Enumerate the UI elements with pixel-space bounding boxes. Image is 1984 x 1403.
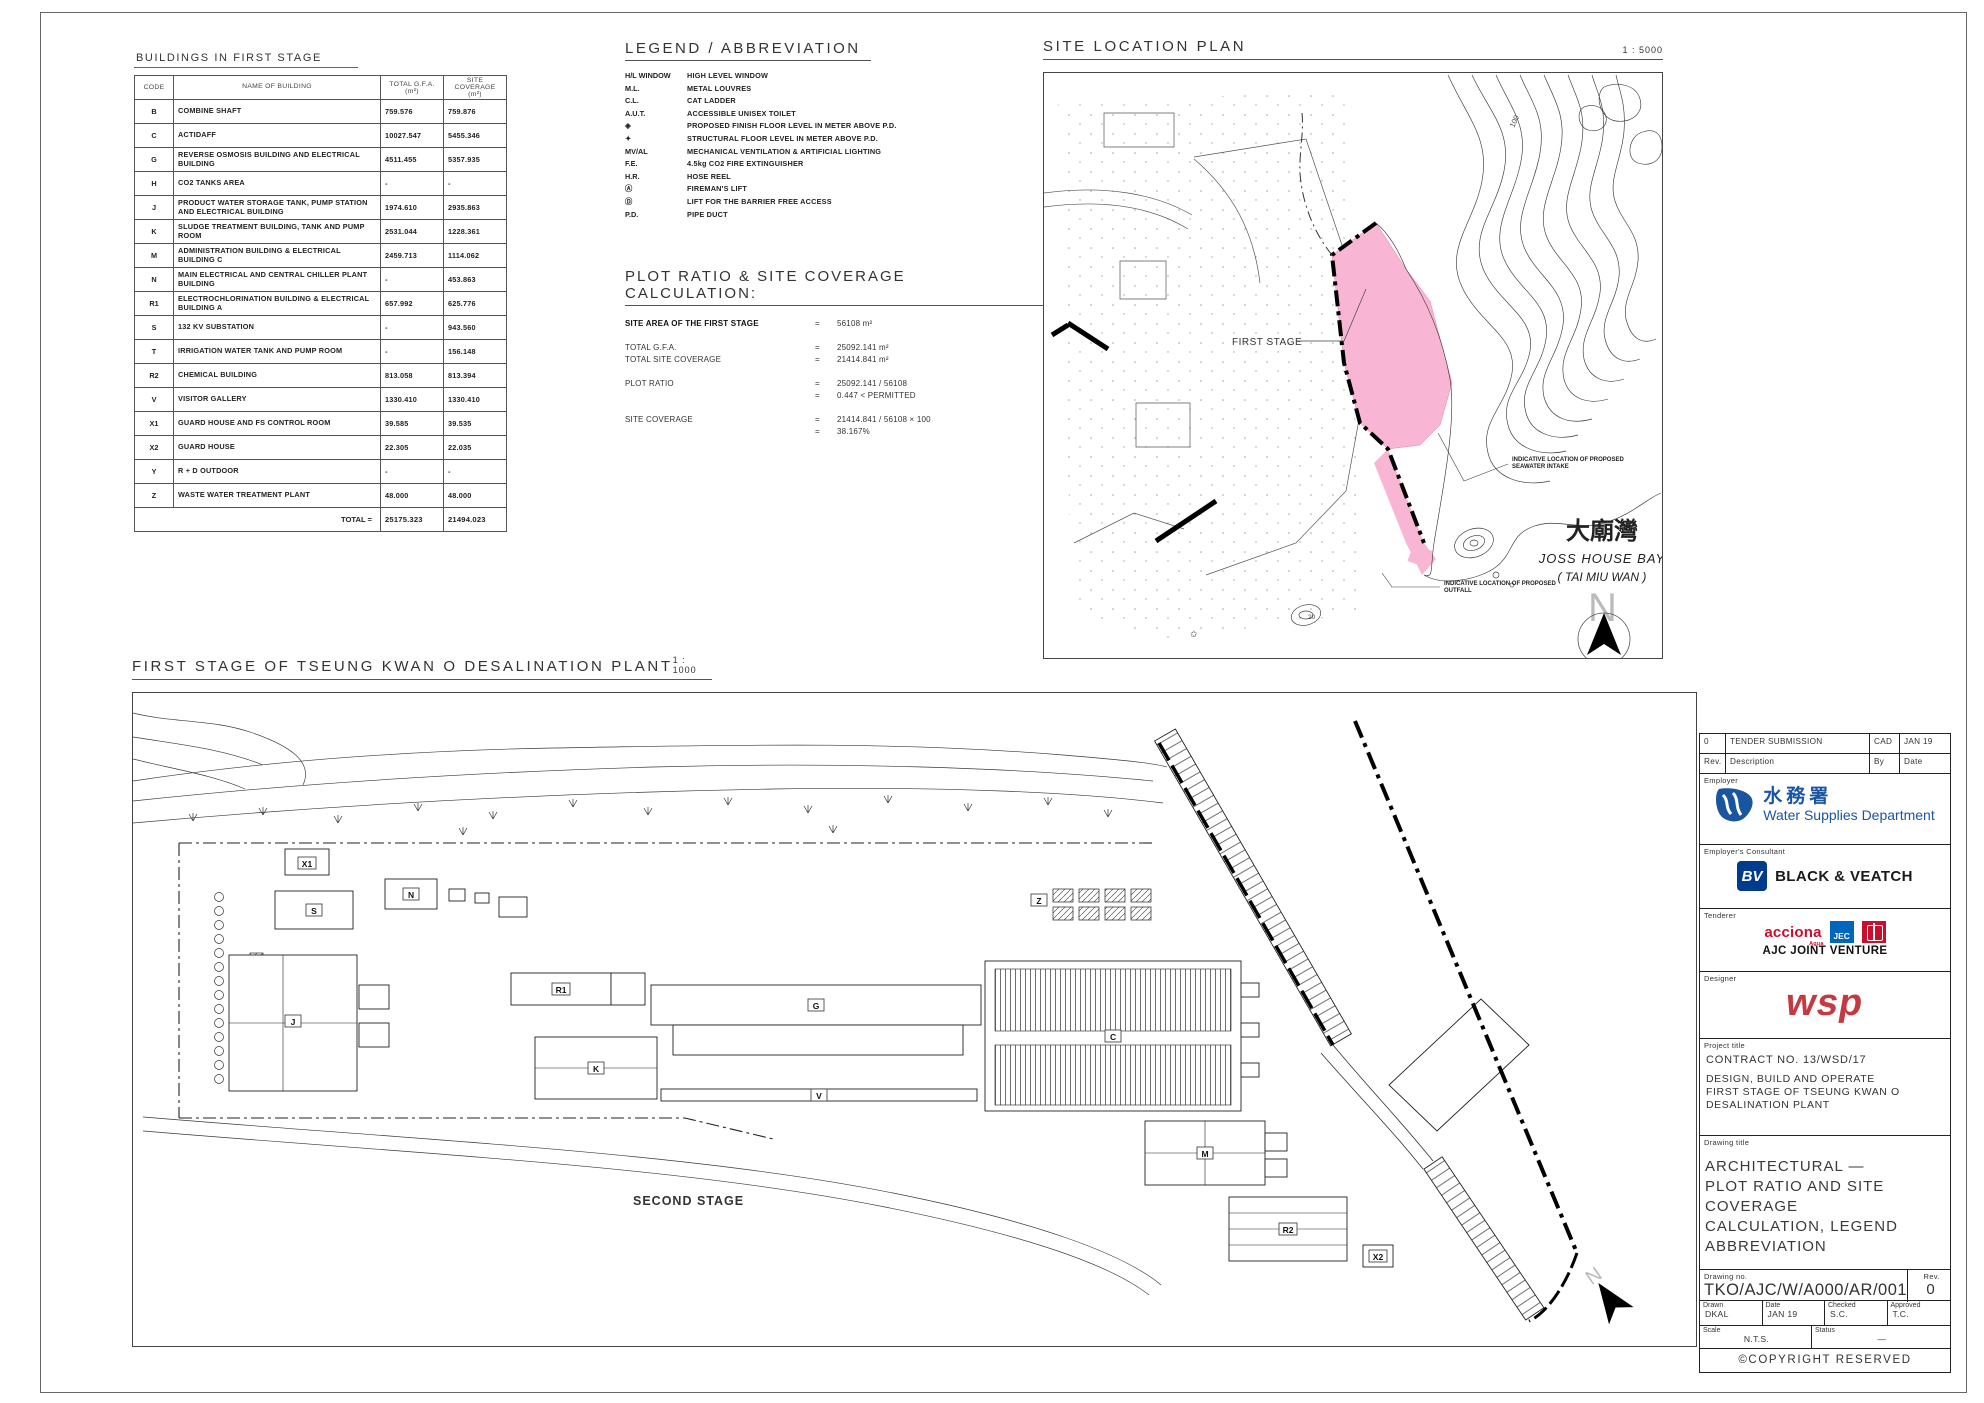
copyright-note: ©COPYRIGHT RESERVED	[1700, 1349, 1950, 1372]
table-row: CACTIDAFF10027.5475455.346	[135, 124, 507, 148]
building-label-m: M	[1197, 1147, 1213, 1159]
site-plan-panel: FIRST STAGE OF TSEUNG KWAN O DESALINATIO…	[132, 655, 1697, 1347]
building-label-x2: X2	[1369, 1250, 1387, 1262]
table-row: KSLUDGE TREATMENT BUILDING, TANK AND PUM…	[135, 220, 507, 244]
project-title-section: Project title CONTRACT NO. 13/WSD/17 DES…	[1700, 1039, 1950, 1136]
svg-text:C: C	[1110, 1032, 1116, 1042]
legend-item: H/L WINDOWHIGH LEVEL WINDOW	[625, 70, 965, 83]
vegetation-tufts	[189, 795, 1112, 835]
building-label-s: S	[306, 904, 322, 916]
drawn-by: DKAL	[1703, 1309, 1759, 1319]
ajc-joint-venture-name: AJC JOINT VENTURE	[1700, 945, 1950, 957]
shoreline-contours	[133, 713, 1167, 823]
svg-text:INDICATIVE LOCATION OF PROPOSE: INDICATIVE LOCATION OF PROPOSED	[1444, 581, 1556, 587]
table-row: JPRODUCT WATER STORAGE TANK, PUMP STATIO…	[135, 196, 507, 220]
building-label-r2: R2	[1279, 1223, 1297, 1235]
col-gfa: TOTAL G.F.A. (m²)	[381, 76, 444, 100]
drawing-sheet: BUILDINGS IN FIRST STAGE CODE NAME OF BU…	[0, 0, 1984, 1403]
wsd-name-en: Water Supplies Department	[1763, 807, 1934, 823]
legend-item: ◈PROPOSED FINISH FLOOR LEVEL IN METER AB…	[625, 120, 965, 133]
checked-by: S.C.	[1828, 1309, 1884, 1319]
second-stage-label: SECOND STAGE	[633, 1194, 744, 1208]
site-location-map: 100 20 FIRST STAGE INDICATIVE LOCATION O…	[1043, 72, 1663, 659]
revision-number: 0	[1908, 1281, 1953, 1298]
black-veatch-name: BLACK & VEATCH	[1775, 868, 1913, 885]
svg-text:N: N	[1582, 1263, 1606, 1289]
table-row: VVISITOR GALLERY1330.4101330.410	[135, 388, 507, 412]
svg-text:V: V	[816, 1091, 822, 1101]
svg-text:R1: R1	[556, 985, 567, 995]
wsd-logo	[1715, 787, 1755, 823]
legend-item: ⒹLIFT FOR THE BARRIER FREE ACCESS	[625, 196, 965, 209]
table-header-row: CODE NAME OF BUILDING TOTAL G.F.A. (m²) …	[135, 76, 507, 100]
col-name: NAME OF BUILDING	[174, 76, 381, 100]
site-plan-map: X1 S N R1 J K G V C Z M R2 X2 SECOND STA…	[132, 692, 1697, 1347]
barrier-free-lift-icon: Ⓓ	[625, 196, 687, 209]
black-veatch-logo: BV	[1737, 861, 1767, 891]
revision-table: 0 TENDER SUBMISSION CAD JAN 19 Rev. Desc…	[1700, 734, 1950, 773]
star-symbol: ✩	[1190, 629, 1198, 639]
calc-line: TOTAL SITE COVERAGE=21414.841 m²	[625, 354, 1045, 366]
tenderer-section: Tenderer accionaAgua JEC AJC JOINT VENTU…	[1700, 909, 1950, 972]
contour-label-20: 20	[1308, 614, 1316, 621]
firemans-lift-icon: Ⓐ	[625, 183, 687, 196]
col-code: CODE	[135, 76, 174, 100]
approved-by: T.C.	[1891, 1309, 1948, 1319]
svg-text:( TAI MIU WAN ): ( TAI MIU WAN )	[1558, 570, 1647, 584]
site-plan-scale: 1 : 1000	[673, 655, 712, 675]
rev-header: Description	[1726, 754, 1870, 773]
meta-row: DrawnDKAL DateJAN 19 CheckedS.C. Approve…	[1700, 1301, 1950, 1326]
building-label-n: N	[403, 888, 419, 900]
svg-text:G: G	[813, 1001, 820, 1011]
wsp-logo: wsp	[1696, 983, 1953, 1023]
svg-text:X2: X2	[1373, 1252, 1384, 1262]
legend-item: M.L.METAL LOUVRES	[625, 83, 965, 96]
legend-item: A.U.T.ACCESSIBLE UNISEX TOILET	[625, 108, 965, 121]
building-label-z: Z	[1031, 894, 1047, 906]
site-location-plan-header: SITE LOCATION PLAN 1 : 5000	[1043, 38, 1663, 60]
rev-by: CAD	[1870, 734, 1900, 754]
contract-no: CONTRACT NO. 13/WSD/17	[1700, 1050, 1950, 1073]
status-value: —	[1815, 1334, 1947, 1344]
table-row: R2CHEMICAL BUILDING813.058813.394	[135, 364, 507, 388]
table-row: GREVERSE OSMOSIS BUILDING AND ELECTRICAL…	[135, 148, 507, 172]
site-location-plan-scale: 1 : 5000	[1622, 45, 1663, 55]
calc-line: PLOT RATIO=25092.141 / 56108	[625, 378, 1045, 390]
legend-item: C.L.CAT LADDER	[625, 95, 965, 108]
building-label-x1: X1	[298, 857, 316, 869]
table-row: X2GUARD HOUSE22.30522.035	[135, 436, 507, 460]
legend-panel: LEGEND / ABBREVIATION H/L WINDOWHIGH LEV…	[625, 40, 965, 221]
finish-floor-level-icon: ◈	[625, 120, 687, 133]
buildings-table: CODE NAME OF BUILDING TOTAL G.F.A. (m²) …	[134, 75, 507, 532]
legend-item: ⒶFIREMAN'S LIFT	[625, 183, 965, 196]
contour-label-100: 100	[1508, 114, 1521, 129]
svg-text:大廟灣: 大廟灣	[1566, 517, 1638, 545]
building-label-k: K	[588, 1062, 604, 1074]
building-label-c: C	[1105, 1030, 1121, 1042]
intake-note: INDICATIVE LOCATION OF PROPOSED SEAWATER…	[1438, 433, 1624, 481]
rev-header: Date	[1900, 754, 1950, 773]
drawing-title-section: Drawing title ARCHITECTURAL — PLOT RATIO…	[1700, 1136, 1950, 1270]
consultant-section: Employer's Consultant BV BLACK & VEATCH	[1700, 845, 1950, 909]
building-label-j: J	[285, 1015, 301, 1027]
total-coverage: 21494.023	[444, 508, 507, 532]
survey-dots-area	[1058, 91, 1362, 639]
table-row: S132 KV SUBSTATION-943.560	[135, 316, 507, 340]
buildings-table-title: BUILDINGS IN FIRST STAGE	[134, 52, 358, 68]
plot-ratio-title: PLOT RATIO & SITE COVERAGE CALCULATION:	[625, 268, 1045, 306]
designer-section: Designer wsp	[1700, 972, 1950, 1039]
north-arrow-icon: N	[1578, 586, 1630, 658]
structural-floor-level-icon: ✦	[625, 133, 687, 146]
wsd-name-cn: 水務署	[1763, 787, 1934, 807]
plot-ratio-panel: PLOT RATIO & SITE COVERAGE CALCULATION: …	[625, 268, 1045, 438]
drawing-number: TKO/AJC/W/A000/AR/001	[1700, 1281, 1907, 1302]
total-label: TOTAL =	[135, 508, 381, 532]
calc-line: SITE AREA OF THE FIRST STAGE=56108 m²	[625, 318, 1045, 330]
col-coverage: SITE COVERAGE (m²)	[444, 76, 507, 100]
rev-header: Rev.	[1700, 754, 1726, 773]
legend-item: P.D.PIPE DUCT	[625, 209, 965, 222]
scale-status-row: ScaleN.T.S. Status—	[1700, 1326, 1950, 1349]
svg-text:OUTFALL: OUTFALL	[1444, 588, 1472, 594]
total-gfa: 25175.323	[381, 508, 444, 532]
calc-line: TOTAL G.F.A.=25092.141 m²	[625, 342, 1045, 354]
acciona-logo: accionaAgua	[1764, 924, 1821, 941]
legend-item: F.E.4.5kg CO2 FIRE EXTINGUISHER	[625, 158, 965, 171]
table-row: MADMINISTRATION BUILDING & ELECTRICAL BU…	[135, 244, 507, 268]
calc-line: SITE COVERAGE=21414.841 / 56108 × 100	[625, 414, 1045, 426]
title-block: 0 TENDER SUBMISSION CAD JAN 19 Rev. Desc…	[1699, 733, 1951, 1373]
svg-text:FIRST STAGE: FIRST STAGE	[1232, 337, 1302, 348]
table-row: R1ELECTROCHLORINATION BUILDING & ELECTRI…	[135, 292, 507, 316]
site-location-plan-title: SITE LOCATION PLAN	[1043, 38, 1246, 55]
legend-item: ✦STRUCTURAL FLOOR LEVEL IN METER ABOVE P…	[625, 133, 965, 146]
table-row: YR + D OUTDOOR--	[135, 460, 507, 484]
table-row: ZWASTE WATER TREATMENT PLANT48.00048.000	[135, 484, 507, 508]
rev-date: JAN 19	[1900, 734, 1950, 754]
building-label-r1: R1	[552, 983, 570, 995]
calc-line: =38.167%	[625, 426, 1045, 438]
svg-text:N: N	[408, 890, 414, 900]
building-label-v: V	[811, 1089, 827, 1101]
bay-name: 大廟灣 JOSS HOUSE BAY ( TAI MIU WAN )	[1538, 517, 1662, 584]
svg-text:K: K	[593, 1064, 600, 1074]
svg-text:SEAWATER INTAKE: SEAWATER INTAKE	[1512, 464, 1569, 470]
site-plan-header: FIRST STAGE OF TSEUNG KWAN O DESALINATIO…	[132, 655, 712, 680]
plan-north-arrow-icon: N	[1575, 1259, 1633, 1325]
rev-value: 0	[1700, 734, 1726, 754]
table-row: BCOMBINE SHAFT759.576759.876	[135, 100, 507, 124]
jec-logo: JEC	[1830, 921, 1854, 943]
buildings-table-panel: BUILDINGS IN FIRST STAGE CODE NAME OF BU…	[134, 48, 486, 532]
site-location-map-svg: 100 20 FIRST STAGE INDICATIVE LOCATION O…	[1044, 73, 1662, 658]
rev-description: TENDER SUBMISSION	[1726, 734, 1870, 754]
svg-text:S: S	[311, 906, 317, 916]
table-total-row: TOTAL = 25175.323 21494.023	[135, 508, 507, 532]
calc-line: =0.447 < PERMITTED	[625, 390, 1045, 402]
legend-title: LEGEND / ABBREVIATION	[625, 40, 871, 61]
legend-item: H.R.HOSE REEL	[625, 171, 965, 184]
svg-text:X1: X1	[302, 859, 313, 869]
cscec-logo	[1862, 921, 1886, 943]
rev-header: By	[1870, 754, 1900, 773]
site-location-plan-panel: SITE LOCATION PLAN 1 : 5000	[1043, 38, 1663, 659]
svg-text:JOSS HOUSE BAY: JOSS HOUSE BAY	[1538, 551, 1662, 566]
site-plan-title: FIRST STAGE OF TSEUNG KWAN O DESALINATIO…	[132, 658, 673, 675]
legend-item: MV/ALMECHANICAL VENTILATION & ARTIFICIAL…	[625, 146, 965, 159]
drawing-no-section: Drawing no. TKO/AJC/W/A000/AR/001 Rev. 0	[1700, 1270, 1950, 1301]
buildings	[229, 849, 1529, 1267]
drawn-date: JAN 19	[1766, 1309, 1822, 1319]
svg-text:M: M	[1201, 1149, 1208, 1159]
svg-text:J: J	[291, 1017, 296, 1027]
svg-text:Z: Z	[1036, 896, 1041, 906]
table-row: HCO2 TANKS AREA--	[135, 172, 507, 196]
svg-text:R2: R2	[1283, 1225, 1294, 1235]
building-label-g: G	[808, 999, 824, 1011]
site-plan-svg: X1 S N R1 J K G V C Z M R2 X2 SECOND STA…	[133, 693, 1696, 1346]
employer-section: Employer 水務署 Water Supplies Department	[1700, 773, 1950, 845]
table-row: NMAIN ELECTRICAL AND CENTRAL CHILLER PLA…	[135, 268, 507, 292]
treatment-tanks	[1053, 889, 1151, 920]
table-row: TIRRIGATION WATER TANK AND PUMP ROOM-156…	[135, 340, 507, 364]
scale-value: N.T.S.	[1703, 1334, 1808, 1344]
outfall-note: INDICATIVE LOCATION OF PROPOSED OUTFALL	[1382, 573, 1556, 594]
svg-text:INDICATIVE LOCATION OF PROPOSE: INDICATIVE LOCATION OF PROPOSED	[1512, 457, 1624, 463]
table-row: X1GUARD HOUSE AND FS CONTROL ROOM39.5853…	[135, 412, 507, 436]
